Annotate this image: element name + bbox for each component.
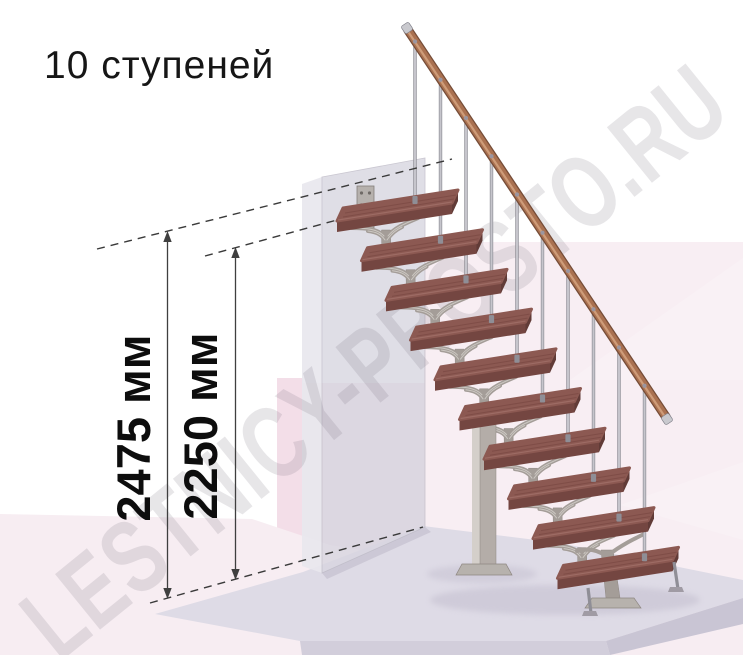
rail-joint — [438, 78, 442, 82]
column-base-plate — [456, 564, 512, 575]
leg-foot — [582, 611, 598, 616]
baluster-foot — [565, 434, 570, 442]
rail-joint — [591, 307, 595, 311]
rail-joint — [642, 384, 646, 388]
rail-joint — [540, 231, 544, 235]
floor-slab-front — [300, 641, 610, 655]
baluster-foot — [642, 553, 647, 561]
baluster-foot — [438, 236, 443, 244]
dimension-label-total-height: 2475 мм — [107, 334, 160, 521]
plate-hole — [360, 191, 363, 194]
lower-base-plate — [585, 598, 641, 608]
rail-joint — [617, 345, 621, 349]
baluster-foot — [463, 275, 468, 283]
staircase-shadow — [430, 585, 700, 615]
rail-joint — [515, 192, 519, 196]
rail-joint — [566, 269, 570, 273]
rail-joint — [413, 39, 417, 43]
diagram-title: 10 ступеней — [44, 44, 274, 87]
staircase-diagram: LESTNICY-PROSTO.RU 2475 мм 2250 мм 10 ст… — [0, 0, 743, 655]
rail-joint — [464, 116, 468, 120]
baluster-foot — [514, 355, 519, 363]
baluster-foot — [591, 474, 596, 482]
diagram-canvas: LESTNICY-PROSTO.RU 2475 мм 2250 мм 10 ст… — [0, 0, 743, 655]
baluster-foot — [540, 395, 545, 403]
baluster-foot — [412, 196, 417, 204]
rail-joint — [489, 154, 493, 158]
dimension-label-top-step-height: 2250 мм — [174, 332, 227, 519]
leg-foot — [668, 587, 684, 592]
main-column-side — [472, 424, 480, 566]
baluster-foot — [616, 514, 621, 522]
plate-hole — [368, 191, 371, 194]
baluster-foot — [489, 315, 494, 323]
